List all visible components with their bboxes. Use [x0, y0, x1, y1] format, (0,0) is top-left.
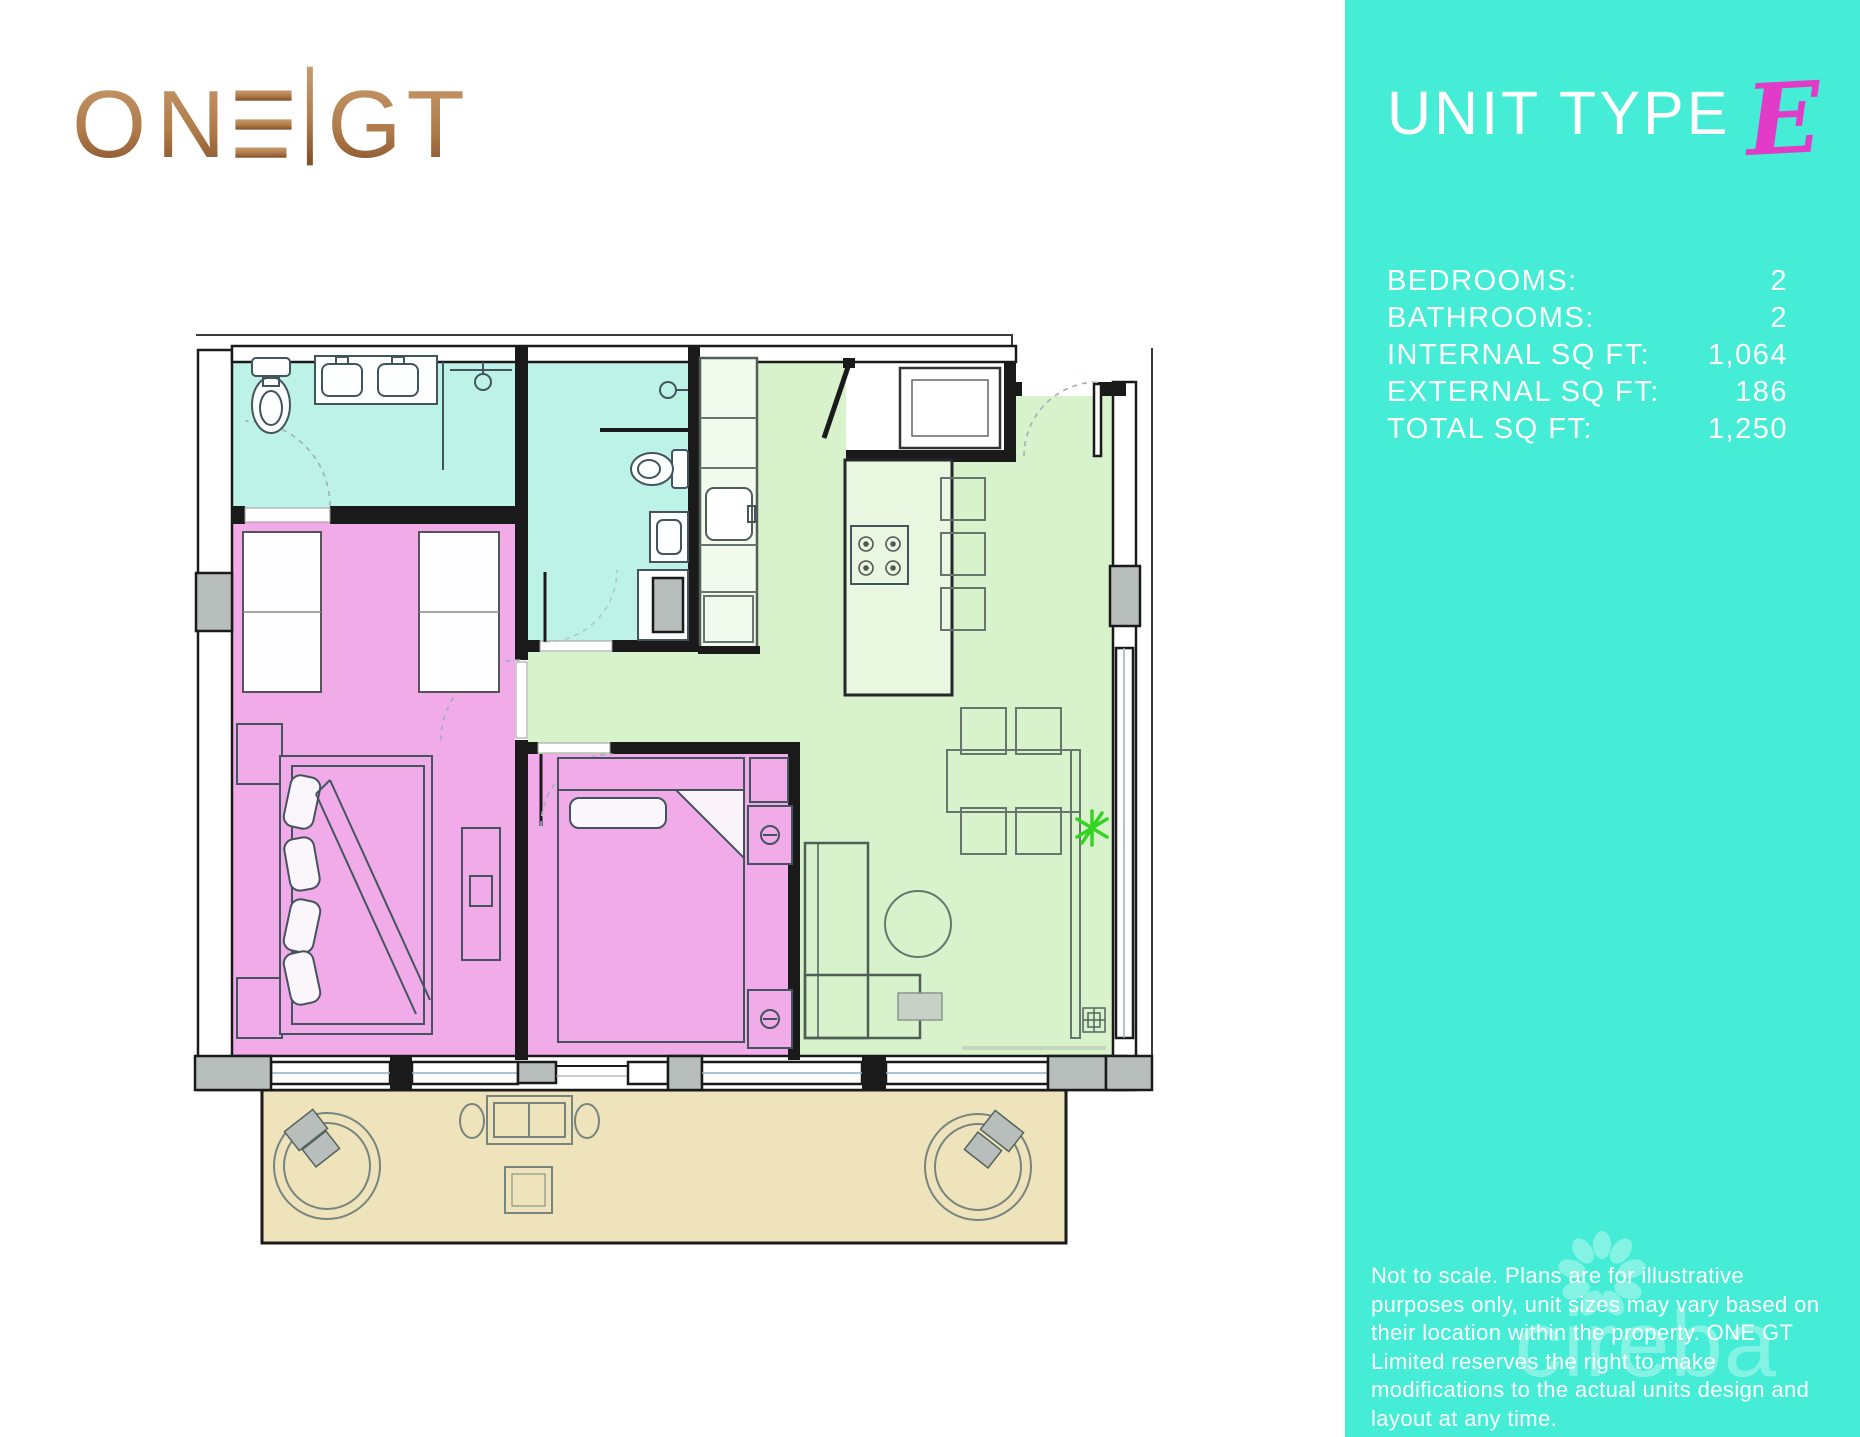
- page: { "brand": { "name": "ONE GT", "logo_lef…: [0, 0, 1860, 1437]
- sliding-door-panel: [518, 1062, 556, 1083]
- logo-divider: [307, 67, 313, 166]
- spec-label: BATHROOMS:: [1387, 300, 1595, 337]
- kitchen-island: [845, 460, 952, 695]
- unit-title-text: UNIT TYPE: [1387, 78, 1730, 148]
- spec-row-total-sqft: TOTAL SQ FT: 1,250: [1387, 411, 1788, 448]
- spec-label: INTERNAL SQ FT:: [1387, 337, 1650, 374]
- toilet-icon: [252, 358, 290, 376]
- brand-logo: ON GT: [72, 50, 472, 182]
- spec-label: TOTAL SQ FT:: [1387, 411, 1593, 448]
- toilet-icon: [672, 450, 688, 488]
- logo-gt-text: GT: [327, 72, 470, 178]
- logo-e-bars-icon: [235, 90, 291, 157]
- column: [1106, 1056, 1152, 1090]
- spec-row-bathrooms: BATHROOMS: 2: [1387, 300, 1788, 337]
- window: [628, 1062, 668, 1084]
- info-panel: UNIT TYPE E BEDROOMS: 2 BATHROOMS: 2 INT…: [1345, 0, 1860, 1437]
- nightstand: [237, 978, 282, 1038]
- tv-table: [898, 993, 942, 1020]
- column: [1048, 1056, 1106, 1090]
- spec-value: 2: [1770, 300, 1788, 337]
- spec-value: 1,250: [1708, 411, 1788, 448]
- spec-row-external-sqft: EXTERNAL SQ FT: 186: [1387, 374, 1788, 411]
- unit-letter: E: [1745, 88, 1826, 152]
- nightstand: [237, 724, 282, 784]
- spec-row-bedrooms: BEDROOMS: 2: [1387, 263, 1788, 300]
- spec-value: 2: [1770, 263, 1788, 300]
- column: [196, 573, 232, 631]
- column: [668, 1056, 702, 1090]
- spec-value: 1,064: [1708, 337, 1788, 374]
- spec-label: EXTERNAL SQ FT:: [1387, 374, 1660, 411]
- disclaimer-text: Not to scale. Plans are for illustrative…: [1371, 1262, 1833, 1433]
- kitchen-sink-icon: [706, 488, 752, 540]
- bench: [462, 828, 500, 960]
- column: [195, 1056, 271, 1090]
- logo-on-text: ON: [72, 72, 235, 178]
- room-balcony: [262, 1090, 1066, 1243]
- unit-title: UNIT TYPE E: [1387, 78, 1824, 148]
- column: [1110, 566, 1140, 626]
- spec-value: 186: [1735, 374, 1788, 411]
- specs-list: BEDROOMS: 2 BATHROOMS: 2 INTERNAL SQ FT:…: [1387, 263, 1788, 448]
- spec-label: BEDROOMS:: [1387, 263, 1578, 300]
- pillows: [570, 798, 666, 828]
- spec-row-internal-sqft: INTERNAL SQ FT: 1,064: [1387, 337, 1788, 374]
- headboard: [558, 758, 744, 790]
- closet: [750, 758, 788, 802]
- entry-vestibule: [900, 368, 1000, 448]
